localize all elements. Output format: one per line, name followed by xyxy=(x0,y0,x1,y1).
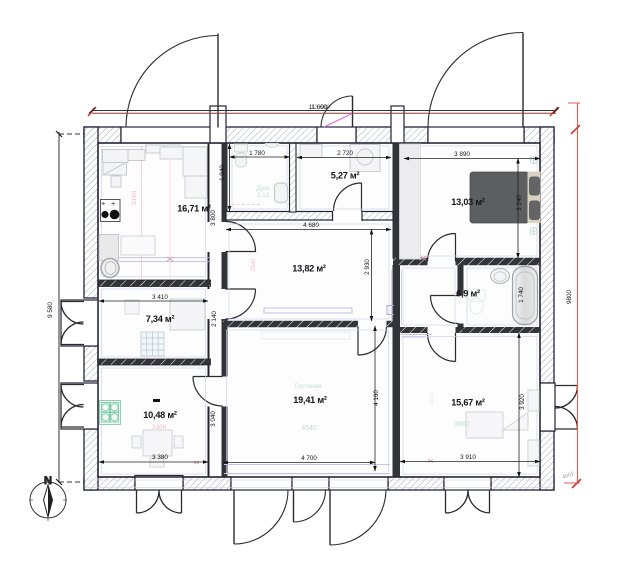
svg-text:4540: 4540 xyxy=(301,425,317,432)
svg-text:4040: 4040 xyxy=(430,391,436,405)
svg-text:3 240: 3 240 xyxy=(516,195,523,211)
svg-text:6,9 м²: 6,9 м² xyxy=(456,289,480,299)
svg-text:19,41 м²: 19,41 м² xyxy=(293,395,327,405)
svg-text:4 700: 4 700 xyxy=(301,455,317,462)
svg-text:3 800: 3 800 xyxy=(210,210,217,226)
svg-text:15,67 м²: 15,67 м² xyxy=(451,398,485,408)
svg-text:1 940: 1 940 xyxy=(219,165,226,181)
svg-text:3 890: 3 890 xyxy=(454,151,470,158)
svg-text:3300: 3300 xyxy=(152,424,167,431)
svg-text:4 680: 4 680 xyxy=(303,222,319,229)
svg-text:13,82 м²: 13,82 м² xyxy=(292,264,326,274)
svg-text:3 410: 3 410 xyxy=(152,294,168,301)
svg-text:2 930: 2 930 xyxy=(364,259,371,275)
svg-text:7,34 м²: 7,34 м² xyxy=(146,314,175,324)
svg-text:16,71 м²: 16,71 м² xyxy=(177,204,211,214)
svg-text:Душ: Душ xyxy=(256,185,269,192)
svg-text:2540: 2540 xyxy=(251,258,257,272)
svg-text:3,13: 3,13 xyxy=(257,192,270,199)
svg-text:5,27 м²: 5,27 м² xyxy=(331,171,360,181)
svg-text:3 040: 3 040 xyxy=(210,411,217,427)
svg-text:3 920: 3 920 xyxy=(519,394,526,410)
svg-text:9 580: 9 580 xyxy=(47,302,54,318)
svg-text:3160: 3160 xyxy=(131,190,138,205)
svg-text:9800: 9800 xyxy=(566,290,573,305)
svg-text:3 910: 3 910 xyxy=(460,454,476,461)
svg-text:1 780: 1 780 xyxy=(249,150,265,157)
svg-text:10,48 м²: 10,48 м² xyxy=(143,410,177,420)
svg-text:12 600: 12 600 xyxy=(311,104,331,111)
svg-text:4 160: 4 160 xyxy=(373,390,380,406)
svg-text:13,03 м²: 13,03 м² xyxy=(451,197,485,207)
svg-text:3 380: 3 380 xyxy=(152,454,168,461)
svg-text:Гостиная: Гостиная xyxy=(294,383,322,390)
svg-text:3860: 3860 xyxy=(454,421,470,428)
svg-text:1 740: 1 740 xyxy=(518,287,525,303)
svg-text:2 140: 2 140 xyxy=(211,311,218,327)
svg-text:2 720: 2 720 xyxy=(337,150,353,157)
